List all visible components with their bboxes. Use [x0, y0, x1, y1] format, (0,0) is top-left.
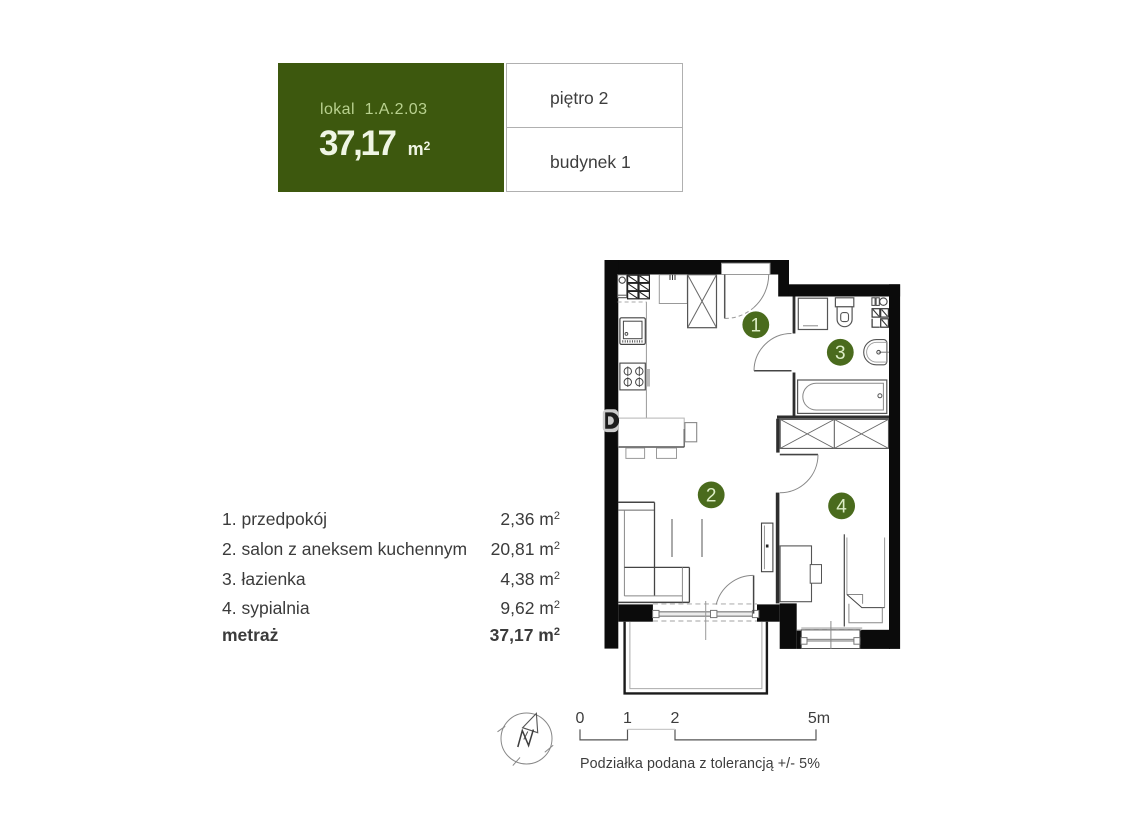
svg-text:2: 2 [671, 710, 680, 727]
svg-text:4: 4 [836, 497, 847, 518]
svg-text:0: 0 [576, 710, 585, 727]
svg-text:1: 1 [751, 316, 762, 337]
svg-text:3: 3 [835, 343, 846, 364]
svg-text:5m: 5m [808, 710, 830, 727]
svg-text:1: 1 [623, 710, 632, 727]
svg-text:2: 2 [706, 486, 717, 507]
